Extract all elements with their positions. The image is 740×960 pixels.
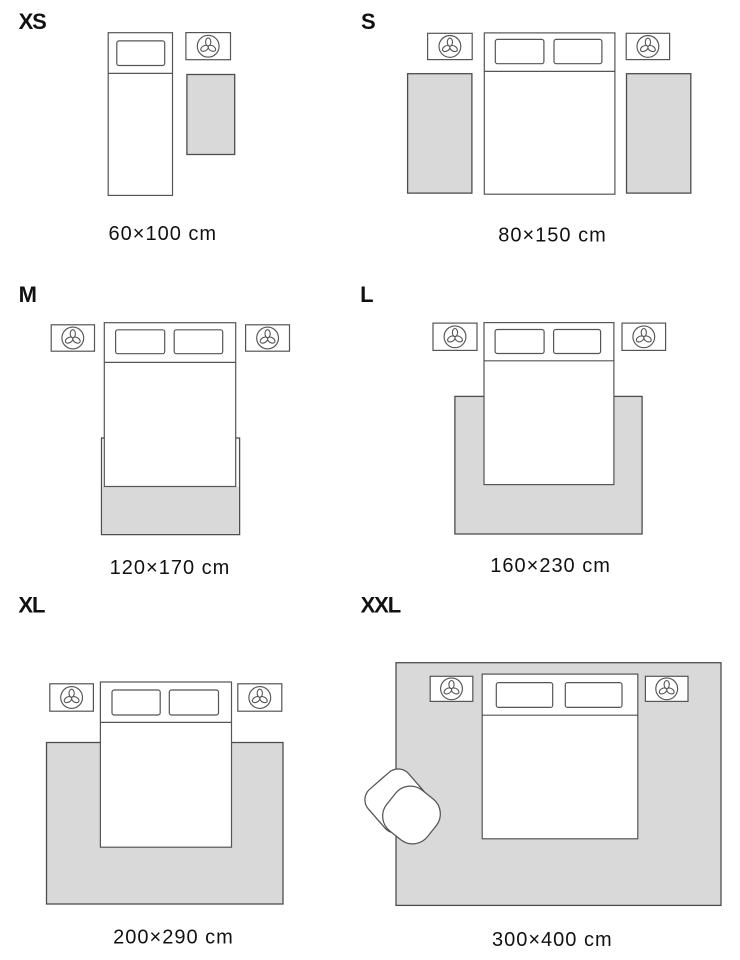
svg-text:M: M	[19, 282, 36, 307]
svg-text:300×400 cm: 300×400 cm	[492, 929, 613, 951]
svg-text:XL: XL	[18, 592, 45, 617]
svg-text:L: L	[360, 282, 373, 307]
svg-text:160×230 cm: 160×230 cm	[490, 555, 611, 577]
svg-text:120×170 cm: 120×170 cm	[110, 557, 231, 579]
svg-text:XXL: XXL	[361, 592, 401, 617]
svg-text:XS: XS	[19, 9, 47, 34]
svg-text:S: S	[361, 9, 375, 34]
svg-text:60×100 cm: 60×100 cm	[109, 223, 218, 245]
svg-text:200×290 cm: 200×290 cm	[113, 927, 234, 949]
svg-text:80×150 cm: 80×150 cm	[498, 225, 607, 247]
